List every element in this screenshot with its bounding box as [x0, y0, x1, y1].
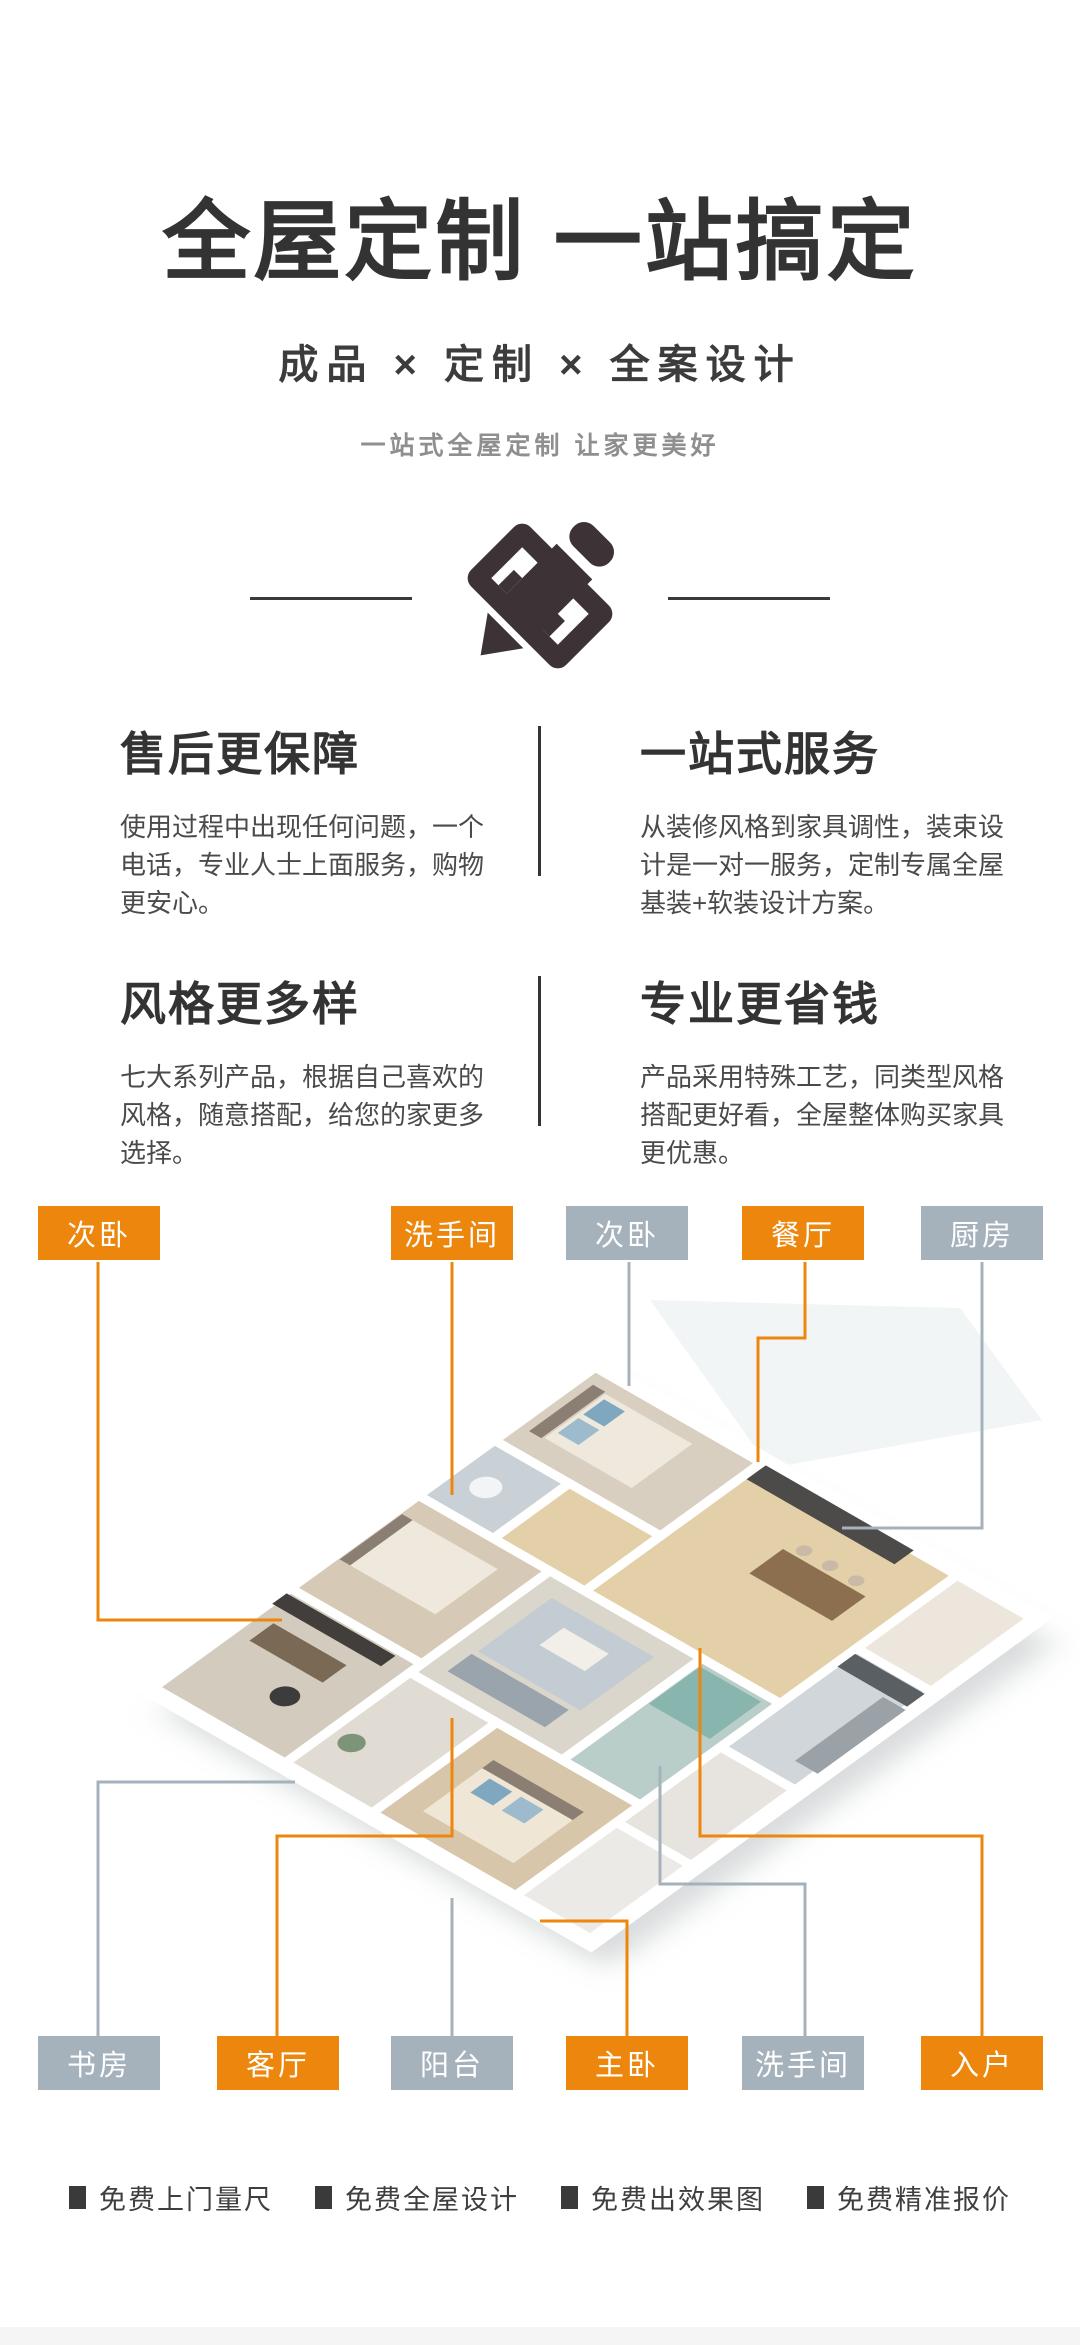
- room-label-bathroom-top: 洗手间: [391, 1206, 513, 1260]
- room-label-bedroom3: 次卧: [566, 1206, 688, 1260]
- room-label-kitchen: 厨房: [921, 1206, 1043, 1260]
- leader-line-study: [98, 1782, 295, 2036]
- room-label-bedroom2: 次卧: [38, 1206, 160, 1260]
- room-label-bathroom-bottom: 洗手间: [742, 2036, 864, 2090]
- bullet-square-icon: [561, 2186, 578, 2209]
- promo-poster: 全屋定制 一站搞定 成品 × 定制 × 全案设计 一站式全屋定制 让家更美好: [0, 0, 1080, 2345]
- bottom-edge-strip: [0, 2327, 1080, 2345]
- room-label-balcony: 阳台: [391, 2036, 513, 2090]
- room-label-master: 主卧: [566, 2036, 688, 2090]
- floor-plan-illustration: [0, 0, 1080, 2345]
- room-label-dining: 餐厅: [742, 1206, 864, 1260]
- footer-item-design: 免费全屋设计: [315, 2178, 519, 2217]
- leader-line-bedroom2-top: [98, 1262, 282, 1620]
- footer-item-label: 免费出效果图: [591, 2178, 765, 2217]
- room-label-study: 书房: [38, 2036, 160, 2090]
- footer-item-label: 免费精准报价: [837, 2178, 1011, 2217]
- footer-item-label: 免费全屋设计: [345, 2178, 519, 2217]
- bullet-square-icon: [315, 2186, 332, 2209]
- room-label-entry: 入户: [921, 2036, 1043, 2090]
- footer-services: 免费上门量尺 免费全屋设计 免费出效果图 免费精准报价: [0, 2178, 1080, 2217]
- footer-item-quote: 免费精准报价: [807, 2178, 1011, 2217]
- footer-item-label: 免费上门量尺: [99, 2178, 273, 2217]
- room-label-living: 客厅: [217, 2036, 339, 2090]
- apartment-3d-model: [134, 1354, 1052, 1951]
- footer-item-render: 免费出效果图: [561, 2178, 765, 2217]
- bullet-square-icon: [807, 2186, 824, 2209]
- footer-item-measure: 免费上门量尺: [69, 2178, 273, 2217]
- bullet-square-icon: [69, 2186, 86, 2209]
